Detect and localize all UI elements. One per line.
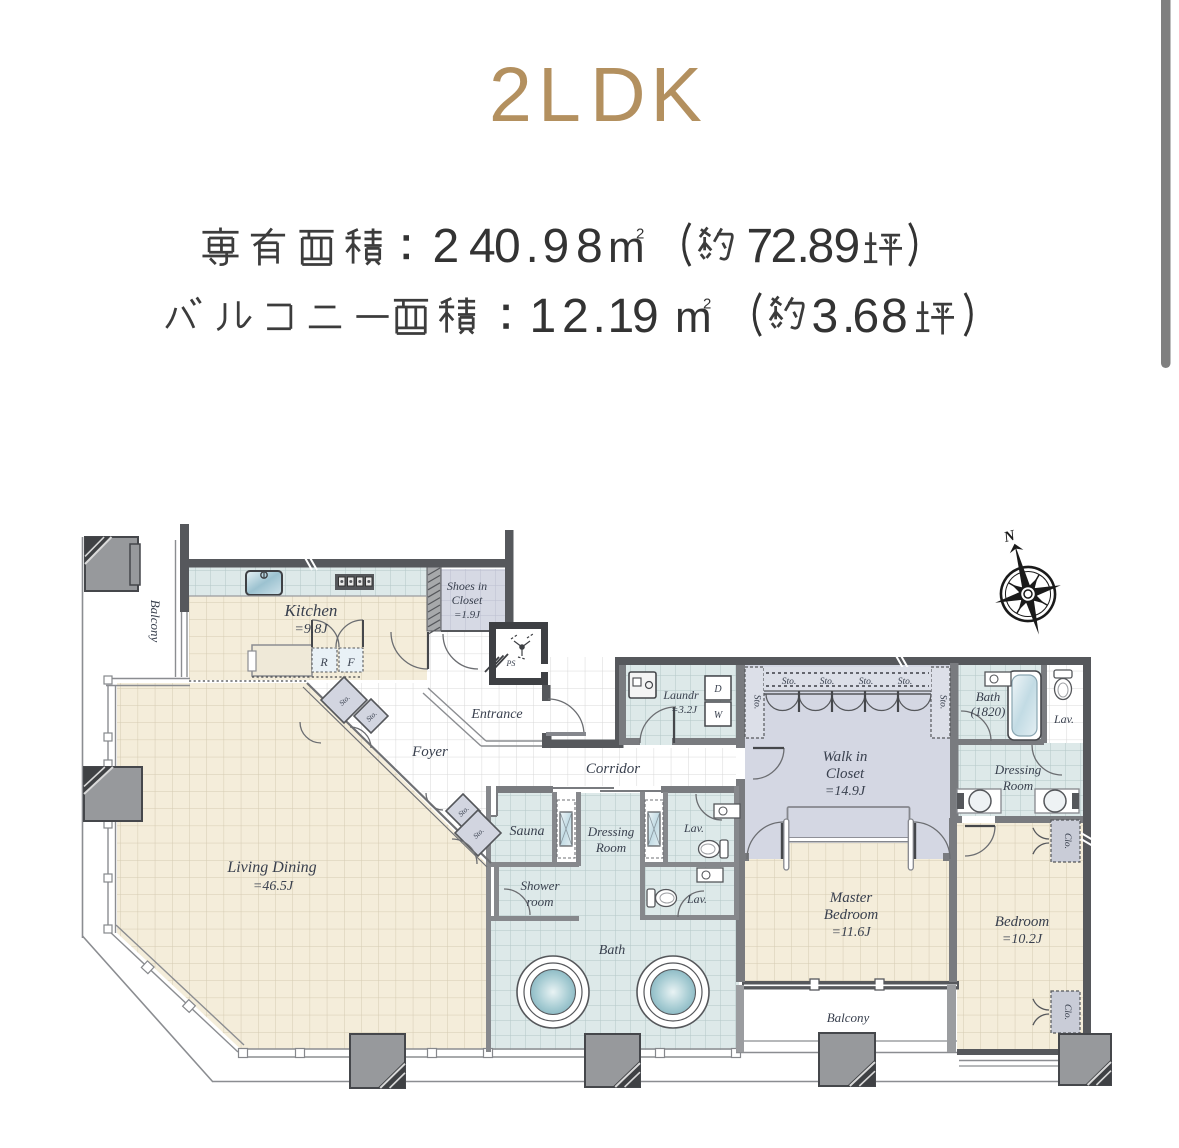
svg-text:Corridor: Corridor xyxy=(586,761,640,777)
svg-text:Sto.: Sto. xyxy=(752,695,762,710)
svg-text:3.68: 3.68 xyxy=(812,290,908,343)
svg-text:Living Dining: Living Dining xyxy=(226,859,316,876)
svg-text:Shoes in: Shoes in xyxy=(447,579,487,593)
svg-text:=9.8J: =9.8J xyxy=(294,622,328,637)
svg-text:Entrance: Entrance xyxy=(470,707,522,722)
svg-text:Sto.: Sto. xyxy=(782,677,797,687)
svg-text:240.98: 240.98 xyxy=(433,220,603,273)
svg-text:Laundr: Laundr xyxy=(662,688,699,702)
svg-text:D: D xyxy=(713,684,722,695)
svg-text:PS: PS xyxy=(506,659,516,668)
svg-text:Lav.: Lav. xyxy=(1053,712,1074,726)
svg-text:2: 2 xyxy=(636,226,644,243)
svg-text:Sto.: Sto. xyxy=(938,695,948,710)
svg-text:Clo.: Clo. xyxy=(1062,1004,1072,1020)
svg-text:Sto.: Sto. xyxy=(898,677,913,687)
svg-text:R: R xyxy=(319,655,328,669)
svg-text:=1.9J: =1.9J xyxy=(454,609,481,621)
svg-text:Master: Master xyxy=(829,890,873,906)
svg-text:=10.2J: =10.2J xyxy=(1002,932,1043,947)
svg-text:=3.2J: =3.2J xyxy=(671,704,698,716)
svg-text:Sto.: Sto. xyxy=(859,677,874,687)
svg-text:Kitchen: Kitchen xyxy=(284,601,338,620)
svg-text:(1820): (1820) xyxy=(971,704,1006,719)
svg-text:Room: Room xyxy=(595,840,626,855)
svg-text:2: 2 xyxy=(703,296,711,313)
svg-text:12.19: 12.19 xyxy=(530,290,659,343)
svg-text:=14.9J: =14.9J xyxy=(825,784,866,799)
svg-text:=11.6J: =11.6J xyxy=(831,925,871,940)
svg-text:room: room xyxy=(527,894,554,909)
svg-text:Dressing: Dressing xyxy=(994,762,1042,777)
svg-text:Dressing: Dressing xyxy=(587,824,635,839)
svg-text:Clo.: Clo. xyxy=(1062,833,1072,849)
svg-text:F: F xyxy=(346,655,355,669)
svg-text:Foyer: Foyer xyxy=(411,744,448,760)
svg-text:Balcony: Balcony xyxy=(148,600,163,643)
svg-text:Lav.: Lav. xyxy=(683,821,704,835)
svg-text:Shower: Shower xyxy=(521,878,561,893)
svg-text:2LDK: 2LDK xyxy=(489,52,702,138)
svg-text:Lav.: Lav. xyxy=(686,892,707,906)
svg-text:Bath: Bath xyxy=(976,689,1001,704)
svg-text:=46.5J: =46.5J xyxy=(253,879,294,894)
svg-text:Balcony: Balcony xyxy=(827,1010,870,1025)
svg-text:Sto.: Sto. xyxy=(820,677,835,687)
svg-text:Closet: Closet xyxy=(826,766,865,782)
svg-text:Bedroom: Bedroom xyxy=(824,907,879,923)
svg-text:Room: Room xyxy=(1002,778,1033,793)
svg-text:Bedroom: Bedroom xyxy=(995,914,1050,930)
svg-text:72.89: 72.89 xyxy=(747,220,861,273)
svg-text:Walk in: Walk in xyxy=(823,749,868,765)
svg-text:Closet: Closet xyxy=(452,593,483,607)
svg-text:Sauna: Sauna xyxy=(510,824,545,839)
svg-text:Bath: Bath xyxy=(599,943,625,958)
